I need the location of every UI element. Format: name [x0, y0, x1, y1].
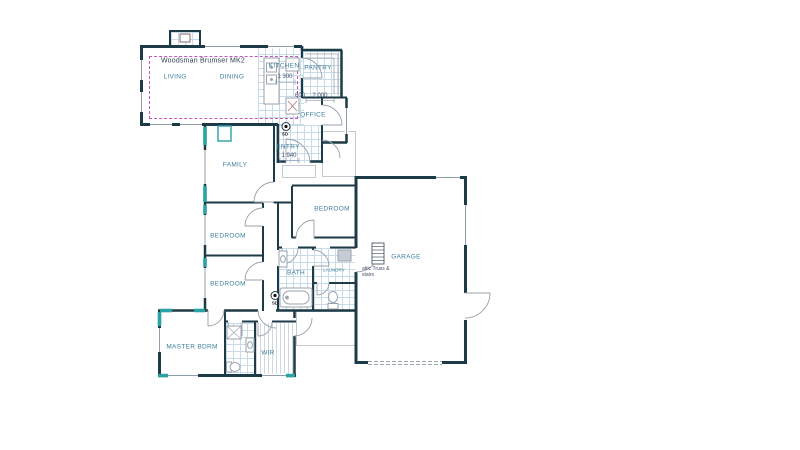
- room-label-bedroom-right: BEDROOM: [314, 206, 350, 213]
- room-label-entry: ENTRY: [276, 144, 299, 151]
- room-label-bedroom-lower: BEDROOM: [210, 281, 246, 288]
- room-label-wir: WIR: [261, 350, 275, 357]
- room-label-pantry: PANTRY: [304, 65, 332, 72]
- room-label-bedroom-mid: BEDROOM: [210, 233, 246, 240]
- room-label-living: LIVING: [163, 74, 186, 81]
- oven: [286, 98, 299, 114]
- walls: [140, 31, 467, 377]
- door-swings: [208, 58, 490, 336]
- room-label-bath: BATH: [287, 270, 305, 277]
- room-label-office: OFFICE: [300, 112, 326, 119]
- smoke-detector-entry-label: SD: [282, 132, 288, 137]
- dimension-entry-width: 1 940: [281, 153, 296, 159]
- ensuite-toilet: [227, 362, 241, 372]
- ensuite-shower: [227, 326, 241, 339]
- room-label-garage: GARAGE: [391, 254, 421, 261]
- dimension-kitchen-clearance: 600: [295, 93, 305, 99]
- washer: [338, 250, 351, 261]
- attic-note-line2: stairs: [362, 272, 374, 278]
- fireplace-box: [180, 34, 190, 42]
- attic-ladder-icon: [372, 243, 384, 264]
- floorplan-geometry: [0, 0, 800, 450]
- hot-water-unit: [218, 126, 231, 141]
- room-label-kitchen: KITCHEN: [269, 63, 300, 70]
- bathtub: [280, 288, 312, 307]
- dimension-kitchen-island: 1 300: [277, 74, 292, 80]
- wc-toilet: [328, 292, 338, 310]
- room-label-laundry: LAUNDRY: [323, 268, 344, 273]
- room-label-family: FAMILY: [223, 162, 247, 169]
- ensuite-vanity: [246, 338, 254, 352]
- bath-vanity: [279, 251, 287, 267]
- plan-title: Woodsman Brumser MK2: [161, 58, 245, 65]
- floorplan-page: Woodsman Brumser MK2 LIVING DINING KITCH…: [0, 0, 800, 450]
- room-label-dining: DINING: [220, 74, 245, 81]
- room-label-master: MASTER BDRM: [166, 344, 217, 351]
- smoke-detector-hall-label: SD: [272, 301, 278, 306]
- dimension-pantry-width: 2 000: [312, 93, 327, 99]
